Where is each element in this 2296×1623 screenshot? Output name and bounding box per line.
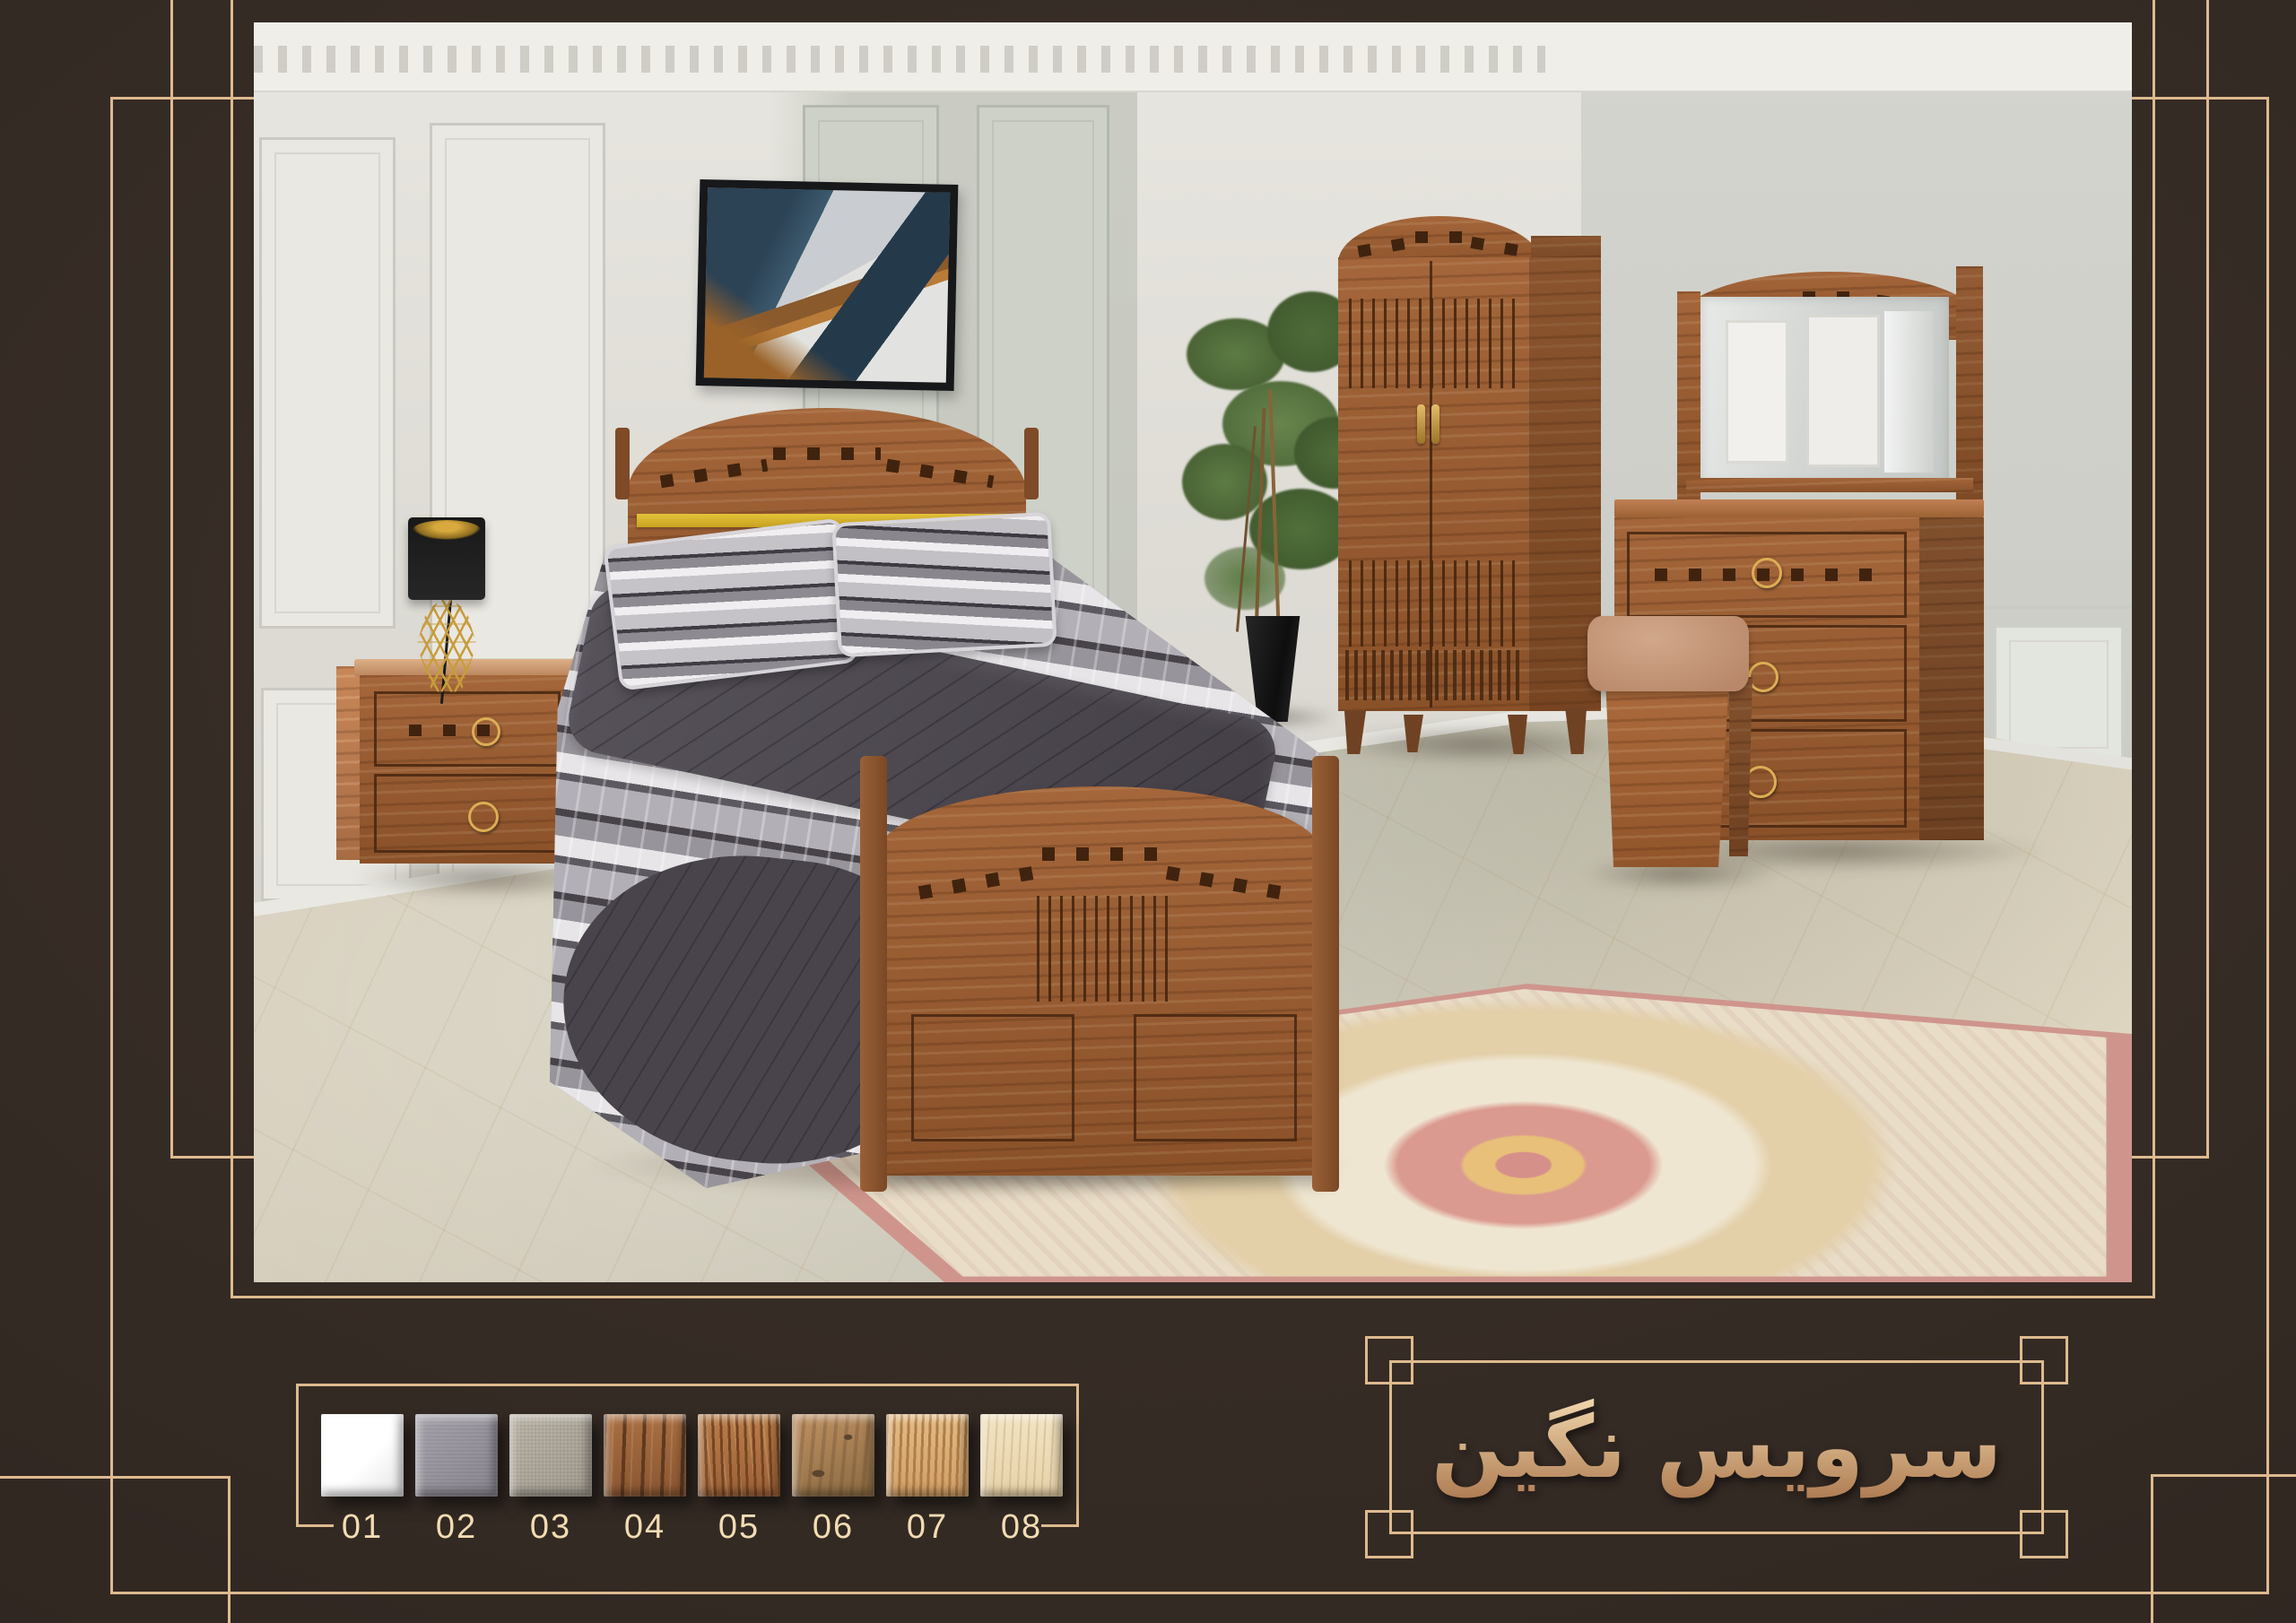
wall-panel — [259, 137, 396, 629]
wardrobe-handle — [1417, 404, 1425, 444]
swatch-label: 05 — [698, 1508, 780, 1547]
swatch-label: 07 — [886, 1508, 969, 1547]
footboard — [877, 786, 1323, 1176]
nightstand-body — [360, 675, 575, 864]
finish-swatch — [321, 1414, 404, 1497]
dresser-side — [1919, 517, 1984, 840]
drawer-ring-pull — [1748, 662, 1779, 692]
mirror-glass — [1700, 297, 1949, 483]
finish-swatch — [415, 1414, 498, 1497]
headboard-post — [1024, 428, 1039, 499]
headboard-post — [615, 428, 630, 499]
drawer-ring-pull — [472, 717, 500, 746]
swatch-label: 08 — [980, 1508, 1063, 1547]
page-title: سرویس نگین — [1389, 1360, 2044, 1534]
wardrobe-body — [1338, 257, 1601, 711]
stool-cushion — [1587, 616, 1749, 691]
footboard-post — [1312, 756, 1339, 1192]
pillow — [831, 512, 1057, 658]
pillow — [603, 517, 859, 690]
nightstand-drawer — [374, 691, 561, 767]
swatch-label: 03 — [509, 1508, 592, 1547]
footboard-post — [860, 756, 887, 1192]
swatch-label: 04 — [604, 1508, 686, 1547]
crown-molding — [254, 22, 2132, 92]
dentil-trim — [254, 46, 1545, 73]
stool-base — [1600, 677, 1735, 867]
decor-rect-bottom-left — [0, 1476, 230, 1623]
swatch-label: 01 — [321, 1508, 404, 1547]
finish-swatch — [886, 1414, 969, 1497]
lamp-shade — [408, 517, 485, 600]
finish-swatch — [792, 1414, 874, 1497]
dresser-top — [1614, 499, 1984, 517]
mirror-post — [1677, 291, 1700, 505]
swatch-label: 02 — [415, 1508, 498, 1547]
bedroom-photo — [254, 22, 2132, 1282]
swatch-label: 06 — [792, 1508, 874, 1547]
dresser-drawer — [1627, 532, 1907, 618]
catalog-page: 01 02 03 04 05 06 07 08 سرویس نگین — [0, 0, 2296, 1623]
finish-swatch — [698, 1414, 780, 1497]
mirror-sill — [1686, 478, 1973, 492]
drawer-ring-pull — [468, 802, 499, 832]
chair-rail — [1979, 605, 2132, 609]
wardrobe-handle — [1431, 404, 1439, 444]
mirror-post — [1956, 266, 1983, 514]
nightstand-drawer — [374, 774, 561, 853]
decor-rect-bottom-right — [2151, 1474, 2296, 1623]
wall-art — [696, 179, 959, 391]
drawer-ring-pull — [1752, 558, 1782, 588]
finish-swatch — [604, 1414, 686, 1497]
finish-swatch — [980, 1414, 1063, 1497]
finish-swatch — [509, 1414, 592, 1497]
